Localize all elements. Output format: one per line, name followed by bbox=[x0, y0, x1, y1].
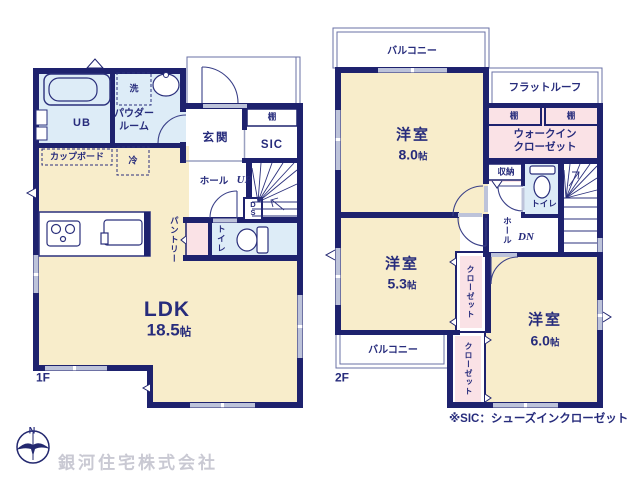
closet-53-label: クローゼット bbox=[465, 265, 475, 319]
hall-label-1f: ホール bbox=[200, 176, 229, 188]
company-watermark: 銀河住宅株式会社 bbox=[58, 452, 218, 473]
room6-name-label: 洋室 bbox=[528, 312, 562, 331]
flat-roof-label: フラットルーフ bbox=[509, 81, 582, 94]
toilet-label-2f: トイレ bbox=[531, 199, 557, 210]
floor2-label: 2F bbox=[335, 371, 349, 386]
entrance-label: 玄関 bbox=[203, 131, 230, 145]
stairs-up-label: UP bbox=[237, 174, 252, 188]
pantry-label: パントリー bbox=[169, 216, 180, 264]
sic-note: ※SIC：シューズインクローゼット bbox=[449, 412, 628, 426]
balcony-top-label: バルコニー bbox=[387, 46, 437, 59]
floorplan-page: UB 洗 パウダールーム カップボード 冷 玄関 SIC 棚 ホール UP DS… bbox=[0, 0, 640, 480]
toilet-label-1f: トイレ bbox=[216, 225, 227, 254]
powder-room-label: パウダールーム bbox=[112, 109, 156, 134]
duct-space-label: DS bbox=[249, 201, 257, 218]
closet-6-label: クローゼット bbox=[463, 342, 473, 396]
room8-name-label: 洋室 bbox=[396, 127, 430, 146]
compass-north-label: N bbox=[29, 425, 36, 436]
shelf-label-1f: 棚 bbox=[268, 112, 277, 123]
shelf-label-left: 棚 bbox=[510, 111, 519, 122]
storage-label: 収納 bbox=[497, 167, 514, 178]
sic-label: SIC bbox=[261, 138, 283, 152]
room6-size-label: 6.0帖 bbox=[531, 332, 560, 350]
floorplan-drawing bbox=[0, 0, 640, 480]
laundry-label: 洗 bbox=[129, 83, 138, 94]
cupboard-label: カップボード bbox=[50, 151, 104, 162]
ldk-size-label: 18.5帖 bbox=[147, 319, 192, 340]
balcony-bottom-label: バルコニー bbox=[368, 345, 418, 358]
walk-in-closet-label: ウォークインクローゼット bbox=[512, 128, 578, 154]
shelf-label-right: 棚 bbox=[567, 111, 576, 122]
unit-bath-label: UB bbox=[73, 117, 91, 131]
floor1-plan bbox=[27, 57, 303, 408]
room8-size-label: 8.0帖 bbox=[399, 146, 428, 164]
stairs-down-label: DN bbox=[518, 231, 534, 245]
fridge-label: 冷 bbox=[128, 155, 137, 166]
floor1-label: 1F bbox=[36, 371, 50, 386]
room53-name-label: 洋室 bbox=[385, 256, 419, 275]
hall-label-2f: ホール bbox=[502, 217, 513, 246]
room53-size-label: 5.3帖 bbox=[388, 275, 417, 293]
